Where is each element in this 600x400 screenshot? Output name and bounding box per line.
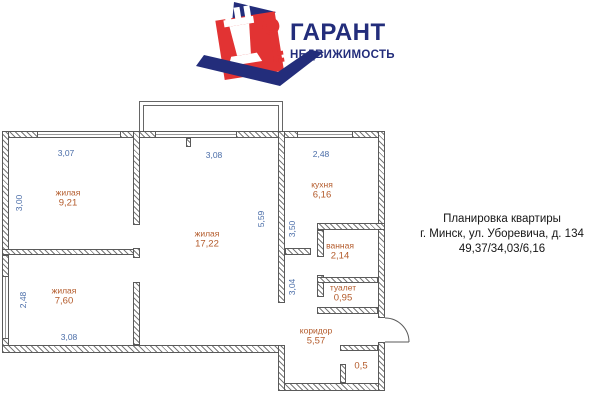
room-area: 17,22 [195,239,220,250]
room-label-bathroom: ванная 2,14 [326,242,354,263]
info-title: Планировка квартиры [404,212,600,227]
room-area: 5,57 [300,336,332,347]
flyer-canvas: { "logo": { "title": "ГАРАНТ", "subtitle… [0,0,600,400]
window-balcony-door [156,131,236,138]
wall-stub [186,138,191,147]
logo-subtitle: НЕДВИЖИМОСТЬ [290,49,395,61]
wall-segment [2,345,285,353]
wall-segment [278,383,385,391]
agency-logo: ГАРАНТ НЕДВИЖИМОСТЬ [186,0,401,90]
room-area: 6,16 [311,190,333,201]
wall-segment [317,307,378,314]
dim-living1-height: 3,00 [14,195,24,212]
wall-segment [133,248,140,258]
room-area: 2,14 [326,251,354,262]
room-area: 0,5 [354,362,367,373]
room-area: 0,95 [330,293,356,304]
balcony-inner-line [143,105,279,133]
room-label-kitchen: кухня 6,16 [311,181,333,202]
wall-segment [2,131,9,255]
window-living1 [38,131,120,138]
info-areas: 49,37/34,03/6,16 [404,242,600,257]
wall-segment [340,345,378,351]
entrance-door [383,316,417,350]
logo-title: ГАРАНТ [290,19,386,46]
wall-segment [317,230,324,257]
dim-living3-height: 2,48 [18,292,28,309]
dim-living2-width: 3,08 [206,150,223,160]
wall-segment [236,131,298,138]
room-label-toilet: туалет 0,95 [330,284,356,305]
room-label-living3: жилая 7,60 [52,287,77,308]
wall-segment [2,249,140,255]
room-label-corridor: коридор 5,57 [300,327,332,348]
window-kitchen [298,131,352,138]
room-area: 9,21 [56,198,81,209]
wall-segment [340,364,346,383]
wall-segment [317,223,385,230]
dim-kitchen-width: 2,48 [313,149,330,159]
room-area: 7,60 [52,296,77,307]
wall-segment [285,248,311,255]
dim-living3-width: 3,08 [61,332,78,342]
dim-hall-upper: 3,50 [287,221,297,238]
dim-hall-lower: 3,04 [287,279,297,296]
wall-segment [278,131,285,303]
dim-living1-width: 3,07 [58,148,75,158]
room-label-closet: 0,5 [354,362,367,373]
wall-segment [133,282,140,345]
room-label-living2: жилая 17,22 [195,230,220,251]
wall-segment [133,131,140,225]
window-living3 [2,277,9,338]
dim-living2-height: 5,59 [256,211,266,228]
info-address: г. Минск, ул. Уборевича, д. 134 [404,227,600,242]
wall-segment [278,345,285,391]
wall-segment [2,255,9,277]
listing-info: Планировка квартиры г. Минск, ул. Уборев… [404,212,600,257]
room-label-living1: жилая 9,21 [56,189,81,210]
